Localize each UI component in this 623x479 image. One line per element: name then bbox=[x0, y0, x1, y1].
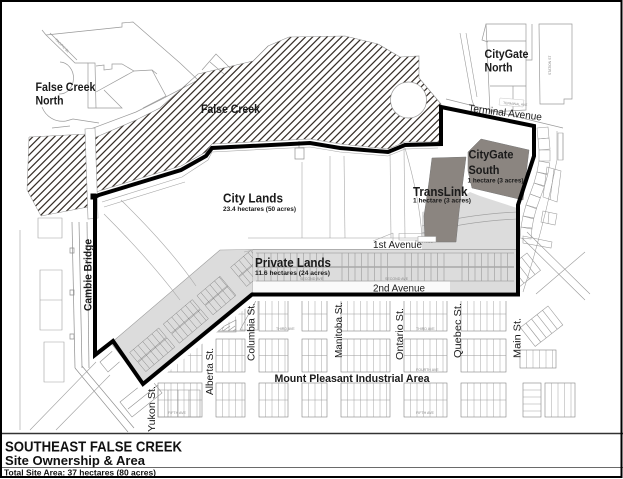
svg-text:STATION ST: STATION ST bbox=[548, 56, 552, 75]
svg-text:Cambie Bridge: Cambie Bridge bbox=[83, 239, 95, 311]
svg-text:False Creek: False Creek bbox=[36, 80, 96, 94]
svg-text:2nd Avenue: 2nd Avenue bbox=[373, 283, 425, 295]
svg-text:FIFTH AVE: FIFTH AVE bbox=[168, 411, 187, 415]
svg-text:Alberta St.: Alberta St. bbox=[204, 348, 216, 395]
svg-text:Columbia St.: Columbia St. bbox=[246, 303, 258, 361]
svg-text:11.6 hectares (24 acres): 11.6 hectares (24 acres) bbox=[255, 270, 330, 277]
svg-text:North: North bbox=[36, 94, 64, 108]
svg-text:City Lands: City Lands bbox=[223, 192, 283, 206]
svg-text:1 hectare (3 acres): 1 hectare (3 acres) bbox=[413, 198, 471, 205]
svg-text:FOURTH AVE: FOURTH AVE bbox=[416, 368, 439, 372]
svg-text:CityGate: CityGate bbox=[485, 47, 529, 61]
svg-text:Mount Pleasant Industrial Area: Mount Pleasant Industrial Area bbox=[275, 373, 431, 385]
svg-text:SECOND AVE: SECOND AVE bbox=[300, 277, 324, 281]
svg-text:North: North bbox=[485, 61, 513, 75]
svg-text:Manitoba St.: Manitoba St. bbox=[333, 302, 345, 358]
svg-text:Quebec St.: Quebec St. bbox=[452, 303, 464, 358]
svg-text:South: South bbox=[469, 163, 500, 177]
svg-text:Private Lands: Private Lands bbox=[255, 256, 331, 270]
svg-text:FIFTH AVE: FIFTH AVE bbox=[416, 411, 435, 415]
svg-text:Yukon St.: Yukon St. bbox=[146, 386, 158, 432]
svg-text:THIRD AVE: THIRD AVE bbox=[416, 327, 435, 331]
svg-text:False Creek: False Creek bbox=[201, 102, 260, 116]
svg-text:Ontario St.: Ontario St. bbox=[394, 308, 406, 360]
svg-text:Main St.: Main St. bbox=[512, 318, 524, 358]
svg-text:1 hectare (3 acres): 1 hectare (3 acres) bbox=[468, 178, 524, 185]
svg-text:CityGate: CityGate bbox=[469, 148, 514, 162]
svg-text:1st Avenue: 1st Avenue bbox=[373, 239, 422, 251]
svg-text:THIRD AVE: THIRD AVE bbox=[276, 327, 295, 331]
svg-text:23.4 hectares (50 acres): 23.4 hectares (50 acres) bbox=[223, 206, 296, 213]
svg-text:SECOND AVE: SECOND AVE bbox=[385, 277, 409, 281]
svg-text:Site Ownership & Area: Site Ownership & Area bbox=[5, 453, 146, 468]
